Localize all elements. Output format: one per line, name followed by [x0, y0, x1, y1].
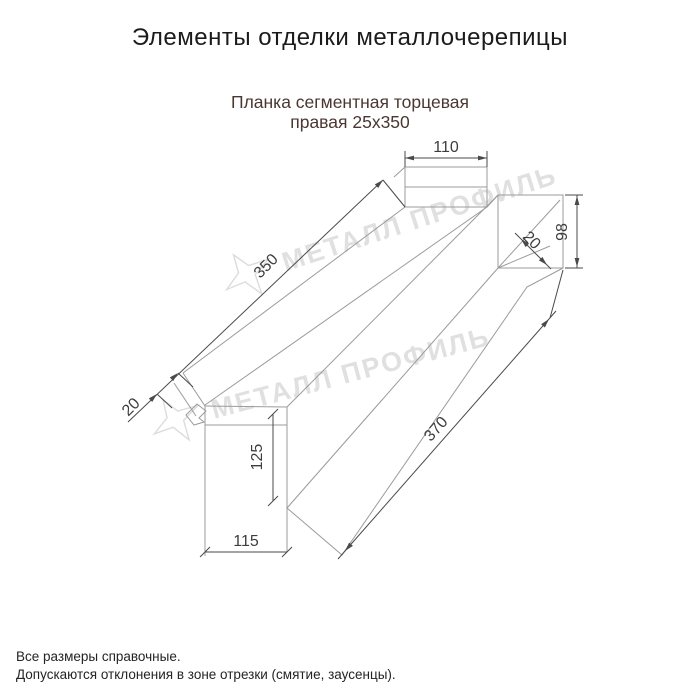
footnote-line: Допускаются отклонения в зоне отрезки (с… [16, 666, 396, 684]
footnote-line: Все размеры справочные. [16, 648, 396, 666]
dimension-length-bottom: 370 [338, 270, 563, 559]
footnotes: Все размеры справочные. Допускаются откл… [16, 648, 396, 683]
dim-label-20-left: 20 [119, 395, 144, 420]
dimension-left-height: 125 [249, 409, 278, 506]
dim-label-20-right: 20 [519, 228, 544, 253]
dim-label-125: 125 [249, 444, 266, 471]
dimension-right-hem: 20 [515, 228, 551, 269]
dim-label-98: 98 [554, 223, 571, 241]
part-outline [174, 167, 563, 556]
technical-drawing: 110 20 350 370 98 [0, 0, 700, 700]
dimension-length-top: 20 350 [119, 180, 405, 422]
dim-label-370: 370 [421, 414, 452, 445]
dimension-top-flange: 110 [405, 139, 487, 167]
dim-label-110: 110 [433, 139, 459, 156]
dimension-left-width: 115 [200, 533, 292, 557]
dim-label-115: 115 [233, 533, 259, 550]
dim-label-350: 350 [251, 251, 282, 282]
catalog-page: Элементы отделки металлочерепицы Планка … [0, 0, 700, 700]
dimension-right-height: 98 [554, 195, 583, 268]
